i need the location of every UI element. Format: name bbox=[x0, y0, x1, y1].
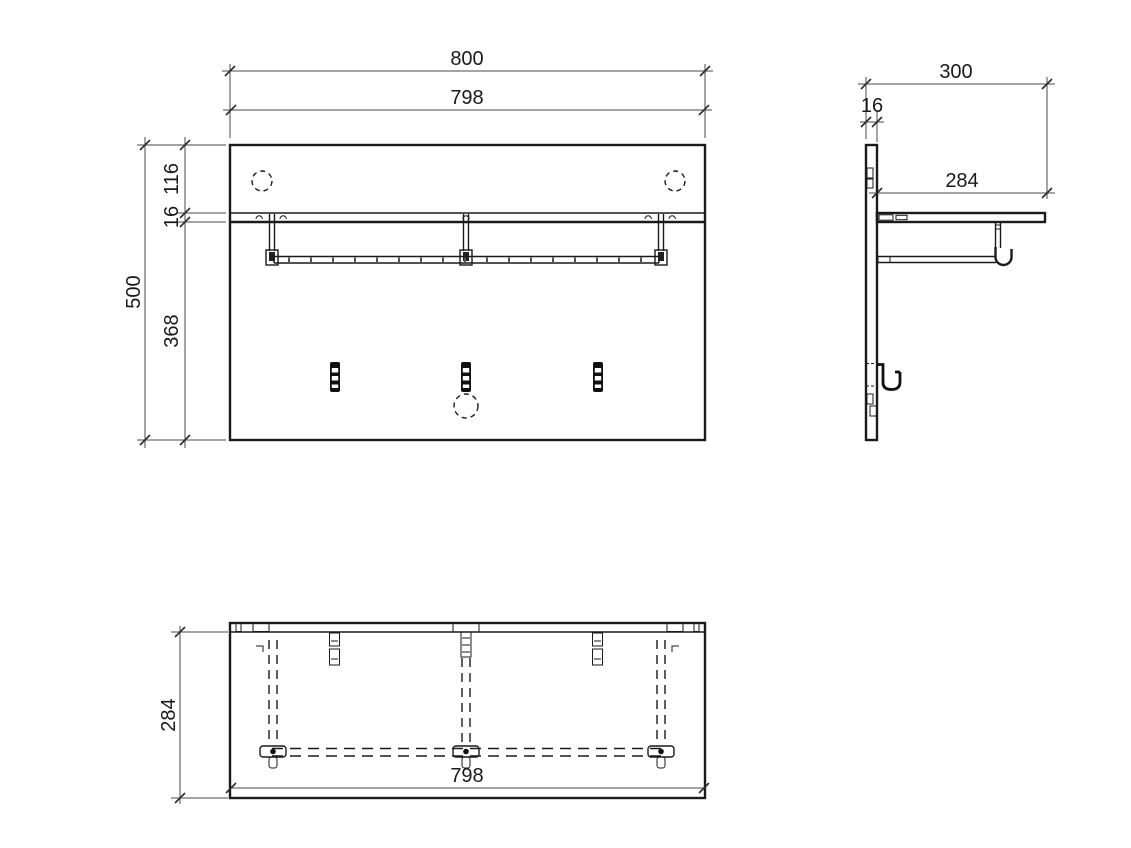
wall-hook-right bbox=[593, 362, 603, 392]
dim-front-shelf-thickness: 16 bbox=[161, 206, 183, 228]
side-dimensions: 300 16 284 bbox=[858, 61, 1055, 199]
front-shelf-strip bbox=[230, 213, 705, 222]
bottom-hidden-bracket-arms bbox=[269, 640, 665, 745]
technical-drawing-canvas: 800 798 116 16 368 500 bbox=[0, 0, 1131, 848]
side-wall-hook bbox=[877, 365, 900, 390]
bottom-hook-right bbox=[593, 633, 603, 665]
bottom-view: 798 284 bbox=[158, 623, 709, 804]
dim-side-shelf-depth: 284 bbox=[945, 170, 978, 192]
bottom-dimensions: 798 284 bbox=[158, 626, 709, 804]
front-panel-outline bbox=[230, 145, 705, 440]
side-panel-details bbox=[866, 168, 877, 416]
wall-hook-left bbox=[330, 362, 340, 392]
front-view: 800 798 116 16 368 500 bbox=[123, 48, 713, 448]
dim-front-top-to-shelf: 116 bbox=[161, 163, 183, 195]
dim-bottom-depth: 284 bbox=[158, 698, 180, 731]
side-shelf-fittings bbox=[879, 215, 907, 220]
bottom-middle-bracket-plate bbox=[453, 624, 479, 658]
front-dimensions: 800 798 116 16 368 500 bbox=[123, 48, 713, 448]
drawing-sheet: 800 798 116 16 368 500 bbox=[0, 0, 1131, 848]
dim-front-total-height: 500 bbox=[123, 275, 145, 308]
side-rail-end-hook bbox=[996, 247, 1012, 265]
dim-front-shelf-width: 798 bbox=[450, 87, 483, 109]
side-rail-support bbox=[996, 222, 1001, 248]
side-view: 300 16 284 bbox=[858, 61, 1055, 440]
bottom-bracket-end-right bbox=[648, 746, 674, 768]
side-rail-arm bbox=[878, 257, 996, 263]
bottom-bracket-end-left bbox=[260, 746, 286, 768]
dim-side-panel-thickness: 16 bbox=[861, 95, 883, 117]
dim-front-below-shelf: 368 bbox=[161, 314, 183, 347]
mount-hole-bottom bbox=[454, 394, 478, 418]
side-panel-outline bbox=[866, 145, 877, 440]
mount-hole-right bbox=[665, 171, 685, 191]
mount-hole-left bbox=[252, 171, 272, 191]
dim-bottom-shelf-width: 798 bbox=[450, 765, 483, 787]
bottom-hook-left bbox=[330, 633, 340, 665]
side-shelf bbox=[877, 213, 1045, 222]
shelf-screw-marks bbox=[256, 216, 675, 219]
dim-side-total-depth: 300 bbox=[939, 61, 972, 83]
dim-front-total-width: 800 bbox=[450, 48, 483, 70]
wall-hook-middle bbox=[461, 362, 471, 392]
